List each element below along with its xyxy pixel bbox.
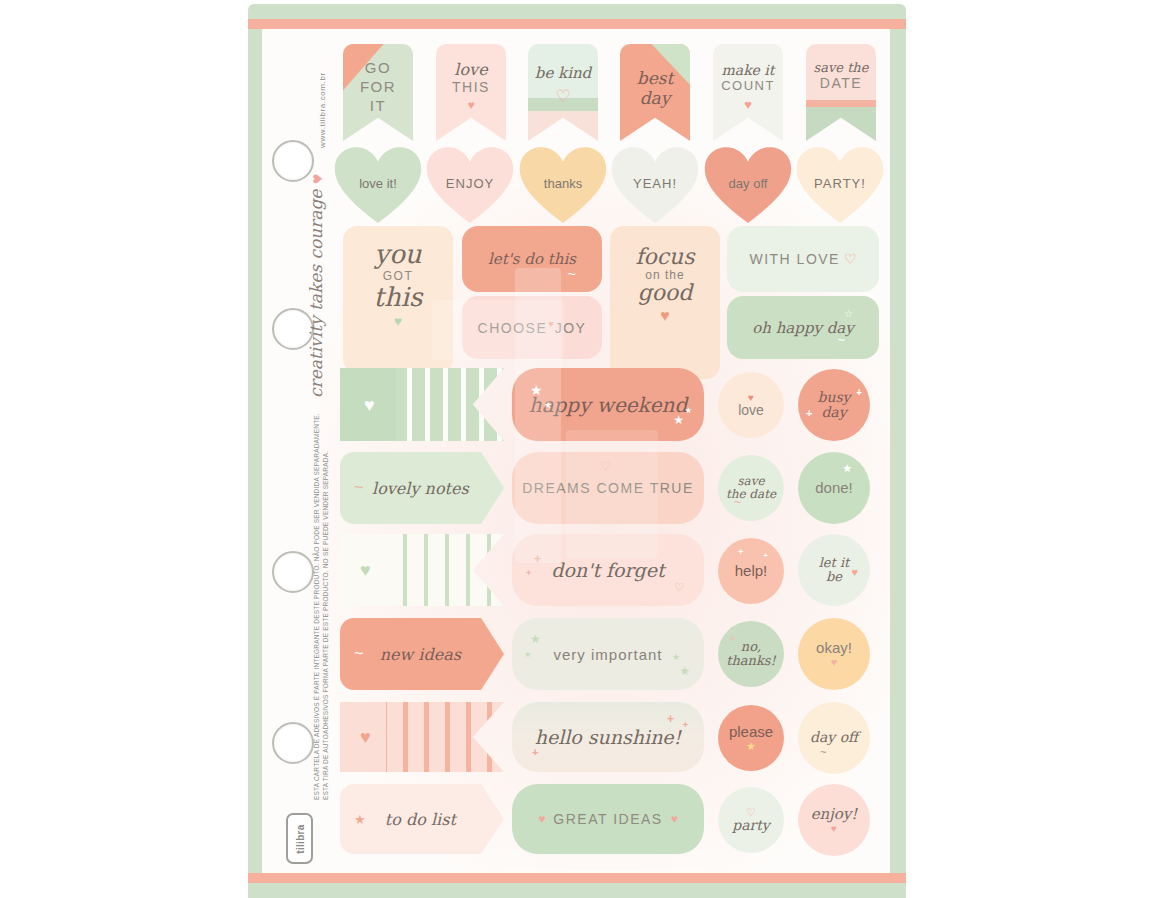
heart-icon: ♥: [671, 812, 678, 826]
quote-label: WITH LOVE: [749, 251, 840, 267]
pill-label: DREAMS COME TRUE: [522, 480, 694, 496]
swirl-icon: ~: [354, 479, 363, 497]
bottom-coral-stripe: [248, 873, 906, 883]
circle-label: please: [729, 724, 773, 741]
sticker-lovely-notes: ~ lovely notes: [340, 452, 504, 524]
circle-label: love: [738, 403, 764, 418]
circle-label: enjoy!: [811, 806, 858, 823]
pill-label: GREAT IDEAS: [553, 811, 662, 827]
sticker-heart-yeah: YEAH!: [610, 145, 700, 227]
heart-icon: ♥: [548, 319, 553, 329]
disclaimer-spanish: ESTA TIRA DE AUTOADHESIVOS FORMA PARTE D…: [322, 451, 329, 800]
punch-hole-4: [272, 722, 314, 764]
circle-line: thanks!: [726, 654, 776, 668]
banner-caps: COUNT: [713, 78, 783, 93]
banner-script: love: [436, 44, 506, 79]
banner-caps: THIS: [436, 79, 506, 95]
banner-script: best: [620, 44, 690, 88]
banner-band: [806, 100, 876, 107]
quote-word: CHOOSE: [478, 320, 548, 336]
circle-line: no,: [741, 640, 761, 654]
sticker-circle-no-thanks: no, thanks! +: [718, 621, 784, 687]
heart-icon: ♥: [713, 97, 783, 112]
swirl-icon: ~: [820, 746, 826, 758]
tilibra-logo: tilibra: [286, 813, 313, 864]
banner-line: FOR: [343, 78, 413, 97]
sticker-circle-busy-day: busy day + +: [798, 369, 870, 441]
sticker-circle-save-the-date: save the date ~: [718, 455, 784, 521]
star-icon: ★: [354, 812, 366, 827]
slogan-text: creativity takes courage ♥: [306, 173, 326, 398]
sparkle-icon: +: [526, 568, 531, 578]
sticker-hello-sunshine: hello sunshine! + + +: [512, 702, 704, 772]
banner-line: GO: [343, 44, 413, 78]
heart-icon: ♥: [311, 173, 325, 184]
disclaimer-portuguese: ESTA CARTELA DE ADESIVOS É PARTE INTEGRA…: [313, 413, 320, 800]
quote-label: let's do this: [488, 250, 576, 268]
brand-label: tilibra: [294, 824, 305, 853]
sticker-lets-do-this: let's do this ~: [462, 226, 602, 292]
sparkle-icon: +: [667, 712, 674, 726]
heart-icon: ♥: [831, 823, 837, 834]
banner-line: IT: [343, 97, 413, 116]
circle-label: help!: [735, 563, 768, 580]
banner-script: be kind: [528, 44, 598, 82]
circle-label: okay!: [816, 640, 852, 657]
heart-label: YEAH!: [610, 175, 700, 190]
website-url: www.tilibra.com.br: [318, 72, 327, 148]
quote-word: JOY: [555, 320, 587, 336]
sticker-circle-day-off: day off ~: [798, 702, 870, 774]
heart-icon: ♥: [360, 727, 371, 748]
sticker-heart-day-off: day off: [703, 145, 793, 227]
slogan-label: creativity takes courage: [306, 190, 326, 398]
heart-label: day off: [703, 175, 793, 190]
sticker-circle-enjoy: enjoy! ♥: [798, 784, 870, 856]
tag-label: lovely notes: [370, 479, 472, 498]
sticker-great-ideas: ♥ GREAT IDEAS ♥: [512, 784, 704, 854]
circle-line: let it: [819, 556, 850, 570]
swirl-icon: ~: [354, 645, 363, 663]
heart-icon: ♥: [538, 812, 545, 826]
sticker-heart-enjoy: ENJOY: [425, 145, 515, 227]
star-icon: ★: [746, 740, 756, 752]
star-icon: ★: [842, 462, 852, 474]
pill-label: don't forget: [551, 559, 664, 581]
sticker-circle-help: help! + +: [718, 538, 784, 604]
sticker-choose-joy: CHOOSE ♥ JOY: [462, 296, 602, 359]
pill-label: very important: [553, 646, 662, 663]
heart-icon: ♥: [831, 656, 838, 668]
heart-icon: ♥: [851, 566, 858, 578]
circle-line: busy: [817, 390, 850, 405]
heart-icon: ♥: [610, 307, 720, 325]
sparkle-icon: +: [534, 552, 541, 566]
star-icon: ★: [679, 664, 690, 678]
quote-line: good: [610, 282, 720, 304]
quote-line: GOT: [343, 269, 453, 283]
sticker-circle-let-it-be: let it be ♥: [798, 534, 870, 606]
sticker-to-do-list: ★ to do list: [340, 784, 504, 854]
sparkle-icon: +: [806, 407, 812, 419]
sticker-circle-please: please ★: [718, 705, 784, 771]
sticker-dreams-come-true: DREAMS COME TRUE ♡: [512, 452, 704, 524]
punch-hole-3: [272, 551, 314, 593]
quote-label: oh happy day: [752, 319, 854, 337]
tag-label: new ideas: [370, 645, 472, 664]
sticker-sheet-product-image: www.tilibra.com.br creativity takes cour…: [0, 0, 1160, 898]
banner-script: day: [620, 88, 690, 108]
quote-line: you: [343, 240, 453, 269]
heart-icon: ♥: [343, 313, 453, 329]
sticker-oh-happy-day: oh happy day ☆ ~: [727, 296, 879, 359]
star-outline-icon: ☆: [844, 308, 853, 319]
sticker-heart-love-it: love it!: [333, 145, 423, 227]
quote-line: focus: [610, 246, 720, 268]
banner-script: make it: [713, 44, 783, 78]
circle-label: done!: [815, 480, 853, 497]
heart-icon: ♥: [364, 394, 375, 415]
heart-outline-icon: ♡: [844, 251, 857, 267]
heart-icon: ♥: [436, 98, 506, 112]
sticker-circle-love: ♥ love: [718, 372, 784, 438]
heart-label: PARTY!: [795, 175, 885, 190]
sticker-dont-forget: don't forget + + ♡: [512, 534, 704, 606]
sticker-focus-on-the-good: focus on the good ♥: [610, 226, 720, 379]
sticker-circle-okay: okay! ♥: [798, 618, 870, 690]
circle-line: the date: [726, 488, 776, 501]
sparkle-icon: +: [856, 387, 862, 398]
sticker-very-important: very important ★ ★ ★ ★: [512, 618, 704, 690]
tag-label: to do list: [370, 810, 472, 829]
sticker-with-love: WITH LOVE ♡: [727, 226, 879, 292]
pill-label: hello sunshine!: [535, 726, 682, 748]
sparkle-icon: +: [730, 635, 735, 645]
sticker-heart-party: PARTY!: [795, 145, 885, 227]
quote-line: this: [343, 283, 453, 312]
top-coral-stripe: [248, 19, 906, 29]
heart-outline-icon: ♡: [600, 459, 611, 473]
heart-outline-icon: ♡: [674, 581, 684, 594]
sticker-heart-thanks: thanks: [518, 145, 608, 227]
circle-line: day: [821, 405, 846, 420]
star-icon: ★: [672, 652, 680, 662]
sparkle-icon: +: [738, 548, 743, 558]
banner-caps: DATE: [806, 75, 876, 91]
heart-label: love it!: [333, 175, 423, 190]
sticker-new-ideas: ~ new ideas: [340, 618, 504, 690]
heart-label: thanks: [518, 175, 608, 190]
pill-label: happy weekend: [529, 393, 688, 417]
sticker-you-got-this: you GOT this ♥: [343, 226, 453, 373]
circle-label: party: [732, 818, 770, 833]
sticker-circle-party: ♡ party: [718, 787, 784, 853]
circle-line: be: [826, 570, 842, 584]
sparkle-icon: +: [763, 552, 768, 561]
star-icon: ★: [524, 650, 531, 659]
sticker-happy-weekend: happy weekend ★ ★ ★ ★: [512, 368, 704, 441]
heart-outline-icon: ♡: [528, 86, 598, 107]
heart-label: ENJOY: [425, 175, 515, 190]
sparkle-icon: +: [683, 720, 688, 730]
heart-icon: ♥: [360, 560, 371, 581]
circle-label: day off: [810, 730, 858, 745]
sticker-circle-done: ★ done!: [798, 452, 870, 524]
banner-script: save the: [806, 44, 876, 75]
star-icon: ★: [530, 632, 541, 646]
